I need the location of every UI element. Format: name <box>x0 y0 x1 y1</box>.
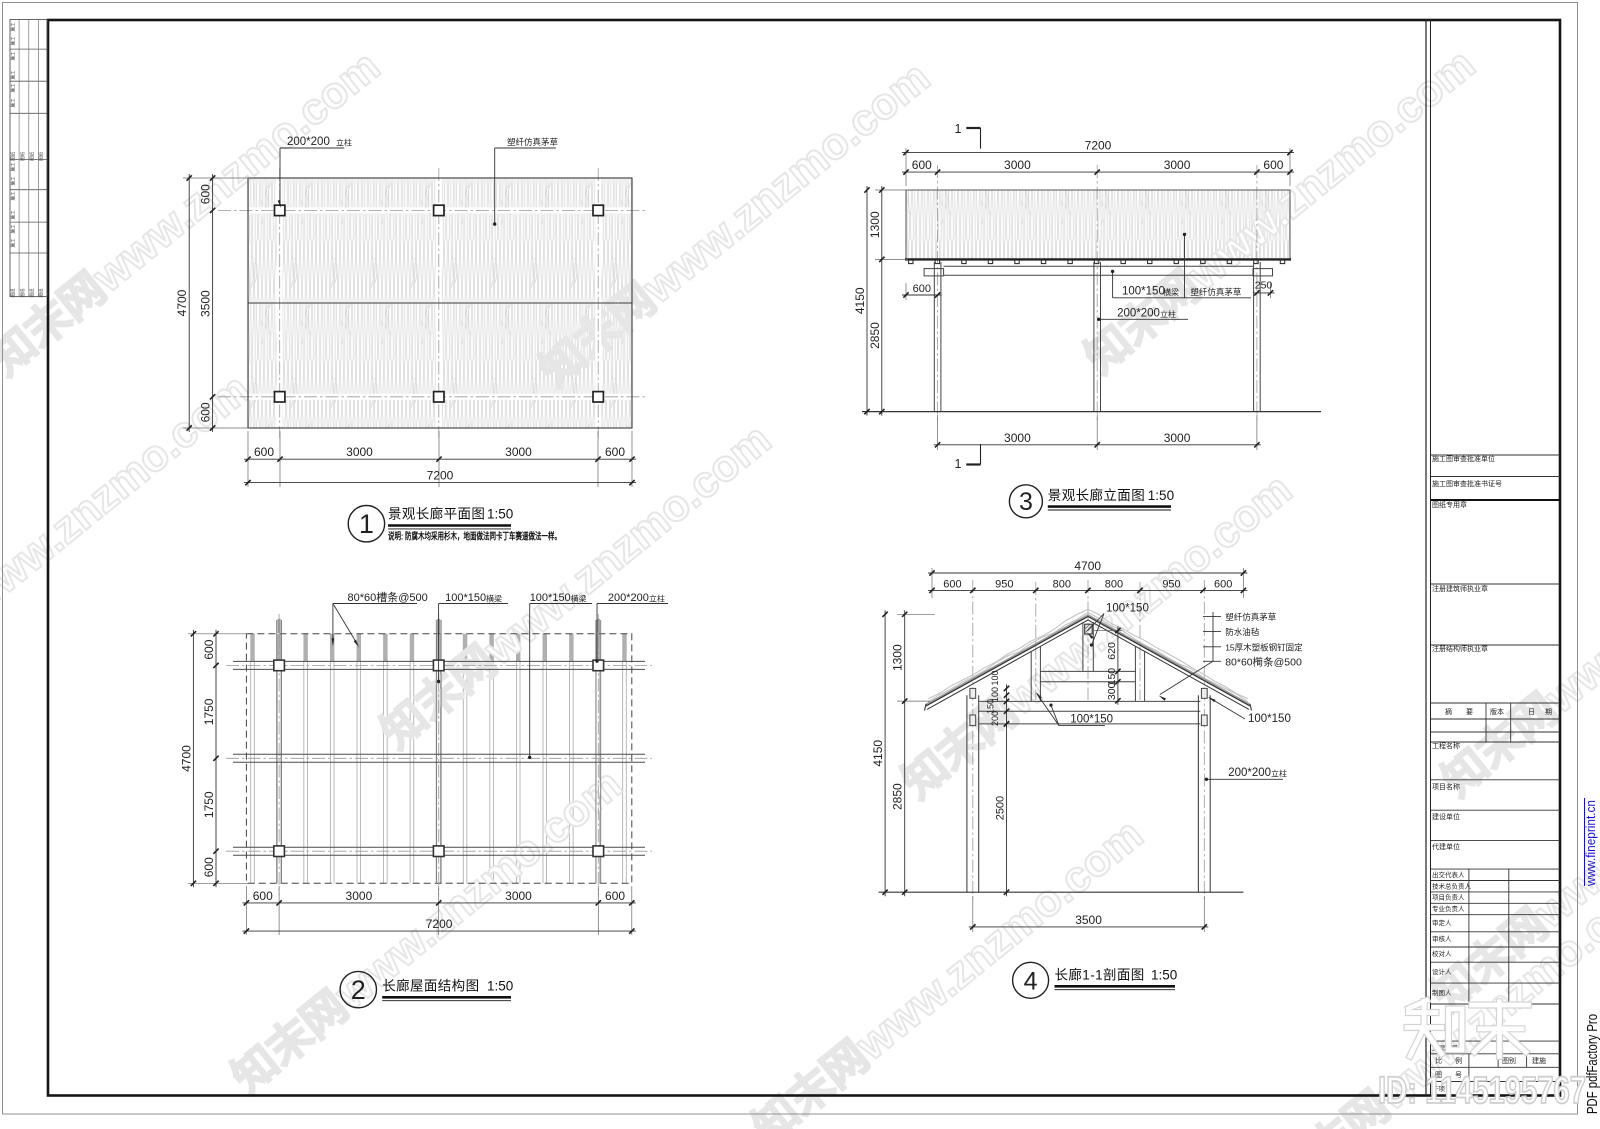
svg-text:专业负责人: 专业负责人 <box>1432 904 1465 913</box>
svg-text:注册结构师执业章: 注册结构师执业章 <box>1432 644 1488 653</box>
svg-text:景观长廊立面图: 景观长廊立面图 <box>1048 487 1145 503</box>
svg-text:知末网www.znzmo.com: 知末网www.znzmo.com <box>0 365 259 708</box>
svg-text:摘: 摘 <box>1445 707 1452 716</box>
svg-text:图纸: 图纸 <box>38 151 45 160</box>
svg-text:1:50: 1:50 <box>487 978 513 993</box>
svg-text:7200: 7200 <box>426 917 453 931</box>
svg-text:施工: 施工 <box>10 224 17 233</box>
svg-text:横梁: 横梁 <box>571 594 587 604</box>
svg-text:立柱: 立柱 <box>649 594 665 604</box>
svg-text:塑纤仿真茅草: 塑纤仿真茅草 <box>1225 612 1277 622</box>
svg-text:3000: 3000 <box>505 445 532 459</box>
svg-text:1300: 1300 <box>891 644 905 671</box>
svg-text:300: 300 <box>1106 682 1118 700</box>
svg-text:600: 600 <box>605 445 625 459</box>
svg-text:4150: 4150 <box>853 287 867 314</box>
svg-text:1: 1 <box>955 122 962 136</box>
svg-text:技术总负责人: 技术总负责人 <box>1432 882 1472 891</box>
svg-text:出交代表人: 出交代表人 <box>1432 870 1465 879</box>
svg-text:校对人: 校对人 <box>1432 949 1452 958</box>
svg-text:知末网www.znzmo.com: 知末网www.znzmo.com <box>372 415 780 758</box>
svg-text:600: 600 <box>913 283 931 295</box>
svg-text:图纸: 图纸 <box>10 288 17 297</box>
svg-text:1: 1 <box>955 457 962 471</box>
svg-text:600: 600 <box>1214 578 1232 590</box>
svg-text:图纸: 图纸 <box>38 288 45 297</box>
svg-text:PDF pdfFactory Pro: PDF pdfFactory Pro <box>1585 1014 1600 1114</box>
svg-text:600: 600 <box>202 639 216 659</box>
svg-text:例: 例 <box>1455 1056 1462 1065</box>
svg-text:3000: 3000 <box>505 889 532 903</box>
svg-text:4700: 4700 <box>175 289 189 316</box>
svg-text:1300: 1300 <box>868 211 882 238</box>
svg-text:立柱: 立柱 <box>1160 309 1176 319</box>
svg-text:3500: 3500 <box>199 290 213 317</box>
svg-text:600: 600 <box>199 184 213 204</box>
svg-text:600: 600 <box>202 857 216 877</box>
svg-text:800: 800 <box>1105 578 1123 590</box>
svg-text:审定人: 审定人 <box>1432 918 1452 927</box>
svg-text:施工: 施工 <box>10 162 17 171</box>
svg-text:ID: 1145195767: ID: 1145195767 <box>1378 1070 1586 1112</box>
svg-text:600: 600 <box>912 158 932 172</box>
svg-text:4700: 4700 <box>179 745 193 772</box>
svg-text:600: 600 <box>1263 158 1283 172</box>
svg-text:600: 600 <box>199 402 213 422</box>
svg-text:横梁: 横梁 <box>486 594 502 604</box>
svg-text:1750: 1750 <box>202 698 216 725</box>
svg-text:600: 600 <box>253 889 273 903</box>
svg-text:1:50: 1:50 <box>1151 968 1177 983</box>
svg-text:版本: 版本 <box>1490 707 1504 716</box>
svg-text:施工图审查批准书证号: 施工图审查批准书证号 <box>1432 479 1502 488</box>
svg-text:塑纤仿真茅草: 塑纤仿真茅草 <box>507 137 559 147</box>
svg-text:项目名称: 项目名称 <box>1432 782 1460 791</box>
svg-text:7200: 7200 <box>427 469 454 483</box>
svg-text:100: 100 <box>990 670 1000 685</box>
svg-text:施工: 施工 <box>10 70 17 79</box>
svg-text:立柱: 立柱 <box>1271 769 1287 779</box>
svg-text:250: 250 <box>1255 280 1273 292</box>
svg-text:施工: 施工 <box>10 238 17 247</box>
svg-text:工程名称: 工程名称 <box>1432 741 1460 750</box>
svg-text:审核人: 审核人 <box>1432 934 1452 943</box>
svg-text:制图人: 制图人 <box>1432 988 1452 997</box>
svg-text:建施: 建施 <box>1532 1056 1546 1065</box>
svg-text:施工: 施工 <box>10 83 17 92</box>
svg-text:塑纤仿真茅草: 塑纤仿真茅草 <box>1190 287 1242 297</box>
svg-text:100*150: 100*150 <box>1070 714 1113 726</box>
svg-text:2500: 2500 <box>995 796 1007 820</box>
svg-text:景观长廊平面图: 景观长廊平面图 <box>388 506 485 522</box>
svg-text:100*150: 100*150 <box>1122 286 1165 298</box>
svg-text:图纸: 图纸 <box>10 151 17 160</box>
svg-text:4: 4 <box>1024 968 1038 996</box>
svg-text:注册建筑师执业章: 注册建筑师执业章 <box>1432 584 1488 593</box>
svg-text:620: 620 <box>1106 642 1118 660</box>
svg-text:2850: 2850 <box>891 783 905 810</box>
svg-text:3500: 3500 <box>1075 913 1102 927</box>
svg-text:施工: 施工 <box>10 210 17 219</box>
svg-text:100*150: 100*150 <box>1106 603 1149 615</box>
svg-text:4700: 4700 <box>1074 559 1101 573</box>
svg-text:图纸: 图纸 <box>19 288 26 297</box>
svg-text:4150: 4150 <box>871 740 885 767</box>
svg-text:知末网www.znzmo.com: 知末网www.znzmo.com <box>1433 463 1600 806</box>
svg-text:200*200: 200*200 <box>287 136 330 148</box>
svg-text:200: 200 <box>990 711 1000 726</box>
svg-text:要: 要 <box>1466 708 1473 716</box>
svg-text:600: 600 <box>254 445 274 459</box>
svg-text:图纸专用章: 图纸专用章 <box>1432 500 1467 509</box>
svg-text:3000: 3000 <box>1164 431 1191 445</box>
svg-text:说明: 防腐木均采用杉木，地面做法同卡丁车赛道做法一样。: 说明: 防腐木均采用杉木，地面做法同卡丁车赛道做法一样。 <box>388 531 561 543</box>
svg-text:横梁: 横梁 <box>1163 287 1179 297</box>
svg-text:3000: 3000 <box>1164 158 1191 172</box>
svg-text:950: 950 <box>1162 578 1180 590</box>
svg-text:期: 期 <box>1545 708 1552 716</box>
svg-text:600: 600 <box>605 889 625 903</box>
svg-text:3000: 3000 <box>1004 431 1031 445</box>
svg-text:1:50: 1:50 <box>487 507 513 522</box>
svg-text:3000: 3000 <box>1004 158 1031 172</box>
svg-text:施工: 施工 <box>10 98 17 107</box>
svg-text:防水油毡: 防水油毡 <box>1225 627 1260 637</box>
svg-text:www.fineprint.cn: www.fineprint.cn <box>1583 800 1598 887</box>
svg-text:图纸: 图纸 <box>29 288 36 297</box>
svg-text:施工: 施工 <box>10 36 17 45</box>
svg-text:施工: 施工 <box>10 191 17 200</box>
svg-text:15厚木塑板钢钉固定: 15厚木塑板钢钉固定 <box>1225 642 1303 652</box>
svg-text:1750: 1750 <box>202 791 216 818</box>
svg-text:长廊屋面结构图: 长廊屋面结构图 <box>382 977 479 993</box>
svg-text:2: 2 <box>351 975 366 1005</box>
svg-text:3: 3 <box>1019 488 1033 516</box>
svg-text:项目负责人: 项目负责人 <box>1432 893 1465 902</box>
svg-text:日: 日 <box>1528 708 1535 716</box>
svg-text:7200: 7200 <box>1085 139 1112 153</box>
svg-text:80*60槽条@500: 80*60槽条@500 <box>348 590 428 604</box>
svg-text:施工: 施工 <box>10 22 17 31</box>
svg-text:图别: 图别 <box>1502 1056 1516 1065</box>
svg-text:2850: 2850 <box>868 322 882 349</box>
svg-text:施工图审查批准单位: 施工图审查批准单位 <box>1432 454 1495 463</box>
svg-text:100*150: 100*150 <box>1248 713 1291 725</box>
svg-text:图纸: 图纸 <box>19 151 26 160</box>
svg-text:80*60橁条@500: 80*60橁条@500 <box>1225 656 1302 669</box>
svg-text:200*200: 200*200 <box>1117 308 1160 320</box>
svg-text:600: 600 <box>943 578 961 590</box>
svg-text:图纸: 图纸 <box>29 151 36 160</box>
svg-text:200*200: 200*200 <box>608 592 649 604</box>
svg-text:200*200: 200*200 <box>1228 767 1271 779</box>
svg-text:施工: 施工 <box>10 176 17 185</box>
svg-text:设计人: 设计人 <box>1432 967 1452 976</box>
svg-text:1:50: 1:50 <box>1148 488 1174 503</box>
svg-text:长廊1-1剖面图: 长廊1-1剖面图 <box>1055 967 1145 983</box>
svg-text:立柱: 立柱 <box>336 138 352 148</box>
svg-text:建设单位: 建设单位 <box>1432 812 1460 821</box>
svg-text:施工: 施工 <box>10 51 17 60</box>
svg-text:950: 950 <box>995 578 1013 590</box>
svg-text:100*150: 100*150 <box>445 592 486 604</box>
svg-text:100*150: 100*150 <box>530 592 571 604</box>
svg-text:3000: 3000 <box>346 889 373 903</box>
svg-text:3000: 3000 <box>346 445 373 459</box>
svg-text:代建单位: 代建单位 <box>1432 842 1460 851</box>
svg-text:1: 1 <box>359 509 374 539</box>
svg-text:800: 800 <box>1053 578 1071 590</box>
